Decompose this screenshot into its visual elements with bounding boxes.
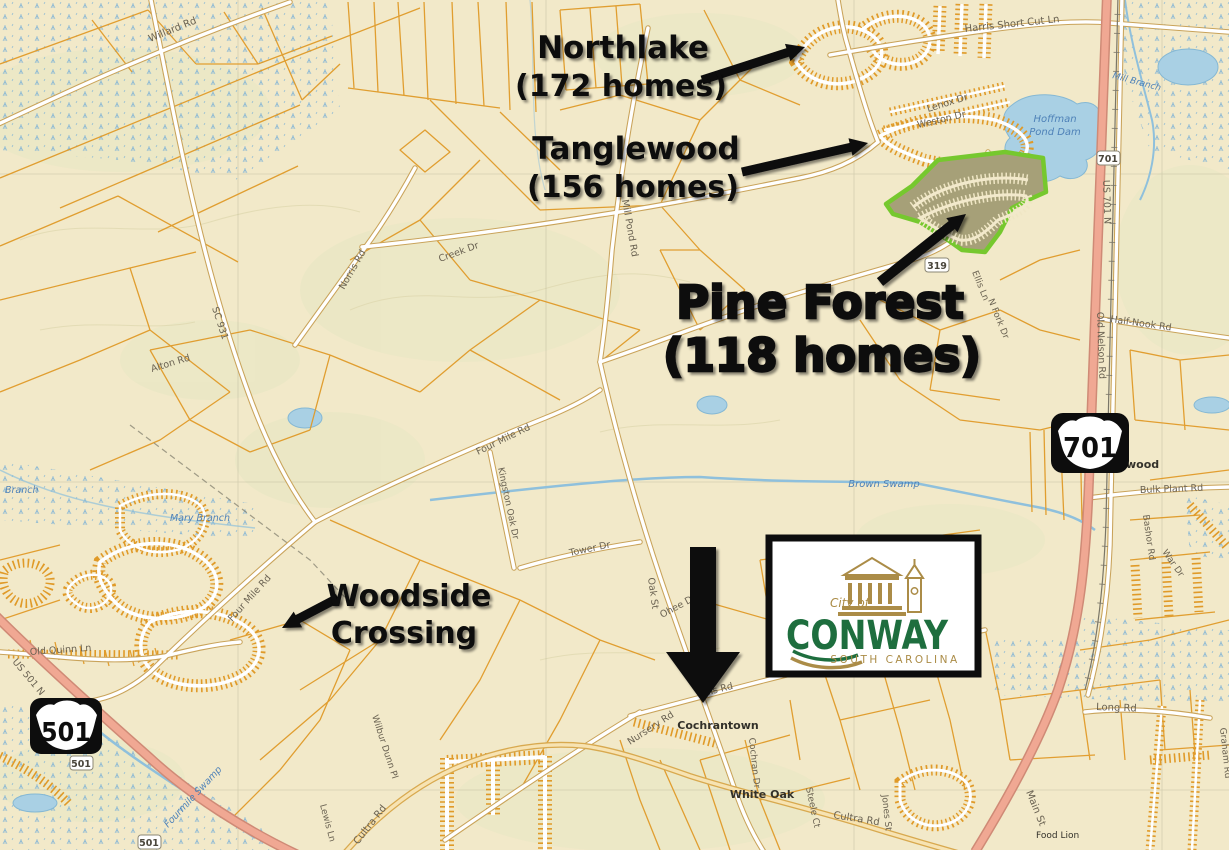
us-501-shield: 501 xyxy=(30,698,102,754)
place-label-white-oak: White Oak xyxy=(730,788,795,801)
northlake-label: Northlake xyxy=(537,30,709,66)
logo-conway: CONWAY xyxy=(786,613,949,659)
route-501-small-shield: 501 xyxy=(139,838,159,849)
northlake-count: (172 homes) xyxy=(515,69,727,104)
water-label: Hoffman xyxy=(1033,114,1076,125)
place-label-food-lion: Food Lion xyxy=(1036,831,1079,841)
water-label: Mary Branch xyxy=(170,513,230,524)
pine-forest-label: Pine Forest xyxy=(676,276,963,329)
map-svg: 319 501 501 701 Willard Rd Harris Short … xyxy=(0,0,1229,850)
woodside-label-line2: Crossing xyxy=(331,616,477,651)
map-canvas: 319 501 501 701 Willard Rd Harris Short … xyxy=(0,0,1229,850)
water-label: Pond Dam xyxy=(1029,127,1081,138)
woodside-label-line1: Woodside xyxy=(327,579,492,614)
road-label: US 701 N xyxy=(1100,180,1113,225)
place-label-wood: wood xyxy=(1126,458,1159,471)
logo-state: SOUTH CAROLINA xyxy=(830,654,959,666)
water-label: Branch xyxy=(5,485,39,496)
logo-city-of: City of xyxy=(830,596,871,610)
conway-logo-box: City of CONWAY SOUTH CAROLINA xyxy=(769,538,978,674)
us-701-shield: 701 xyxy=(1051,413,1129,473)
road-label: Bulk Plant Rd xyxy=(1140,483,1204,496)
tanglewood-label: Tanglewood xyxy=(532,131,739,167)
tanglewood-count: (156 homes) xyxy=(527,170,739,205)
route-701-small-shield: 701 xyxy=(1098,154,1118,165)
route-319-shield: 319 xyxy=(927,261,947,272)
place-label-cochrantown: Cochrantown xyxy=(677,719,758,732)
road-label: Long Rd xyxy=(1096,702,1137,714)
svg-text:701: 701 xyxy=(1063,431,1117,464)
pine-forest-count: (118 homes) xyxy=(663,329,981,382)
route-501-small-shield: 501 xyxy=(71,759,91,770)
svg-text:501: 501 xyxy=(41,718,91,748)
road-label: Old Nelson Rd xyxy=(1094,312,1107,380)
water-label: Brown Swamp xyxy=(848,479,920,490)
